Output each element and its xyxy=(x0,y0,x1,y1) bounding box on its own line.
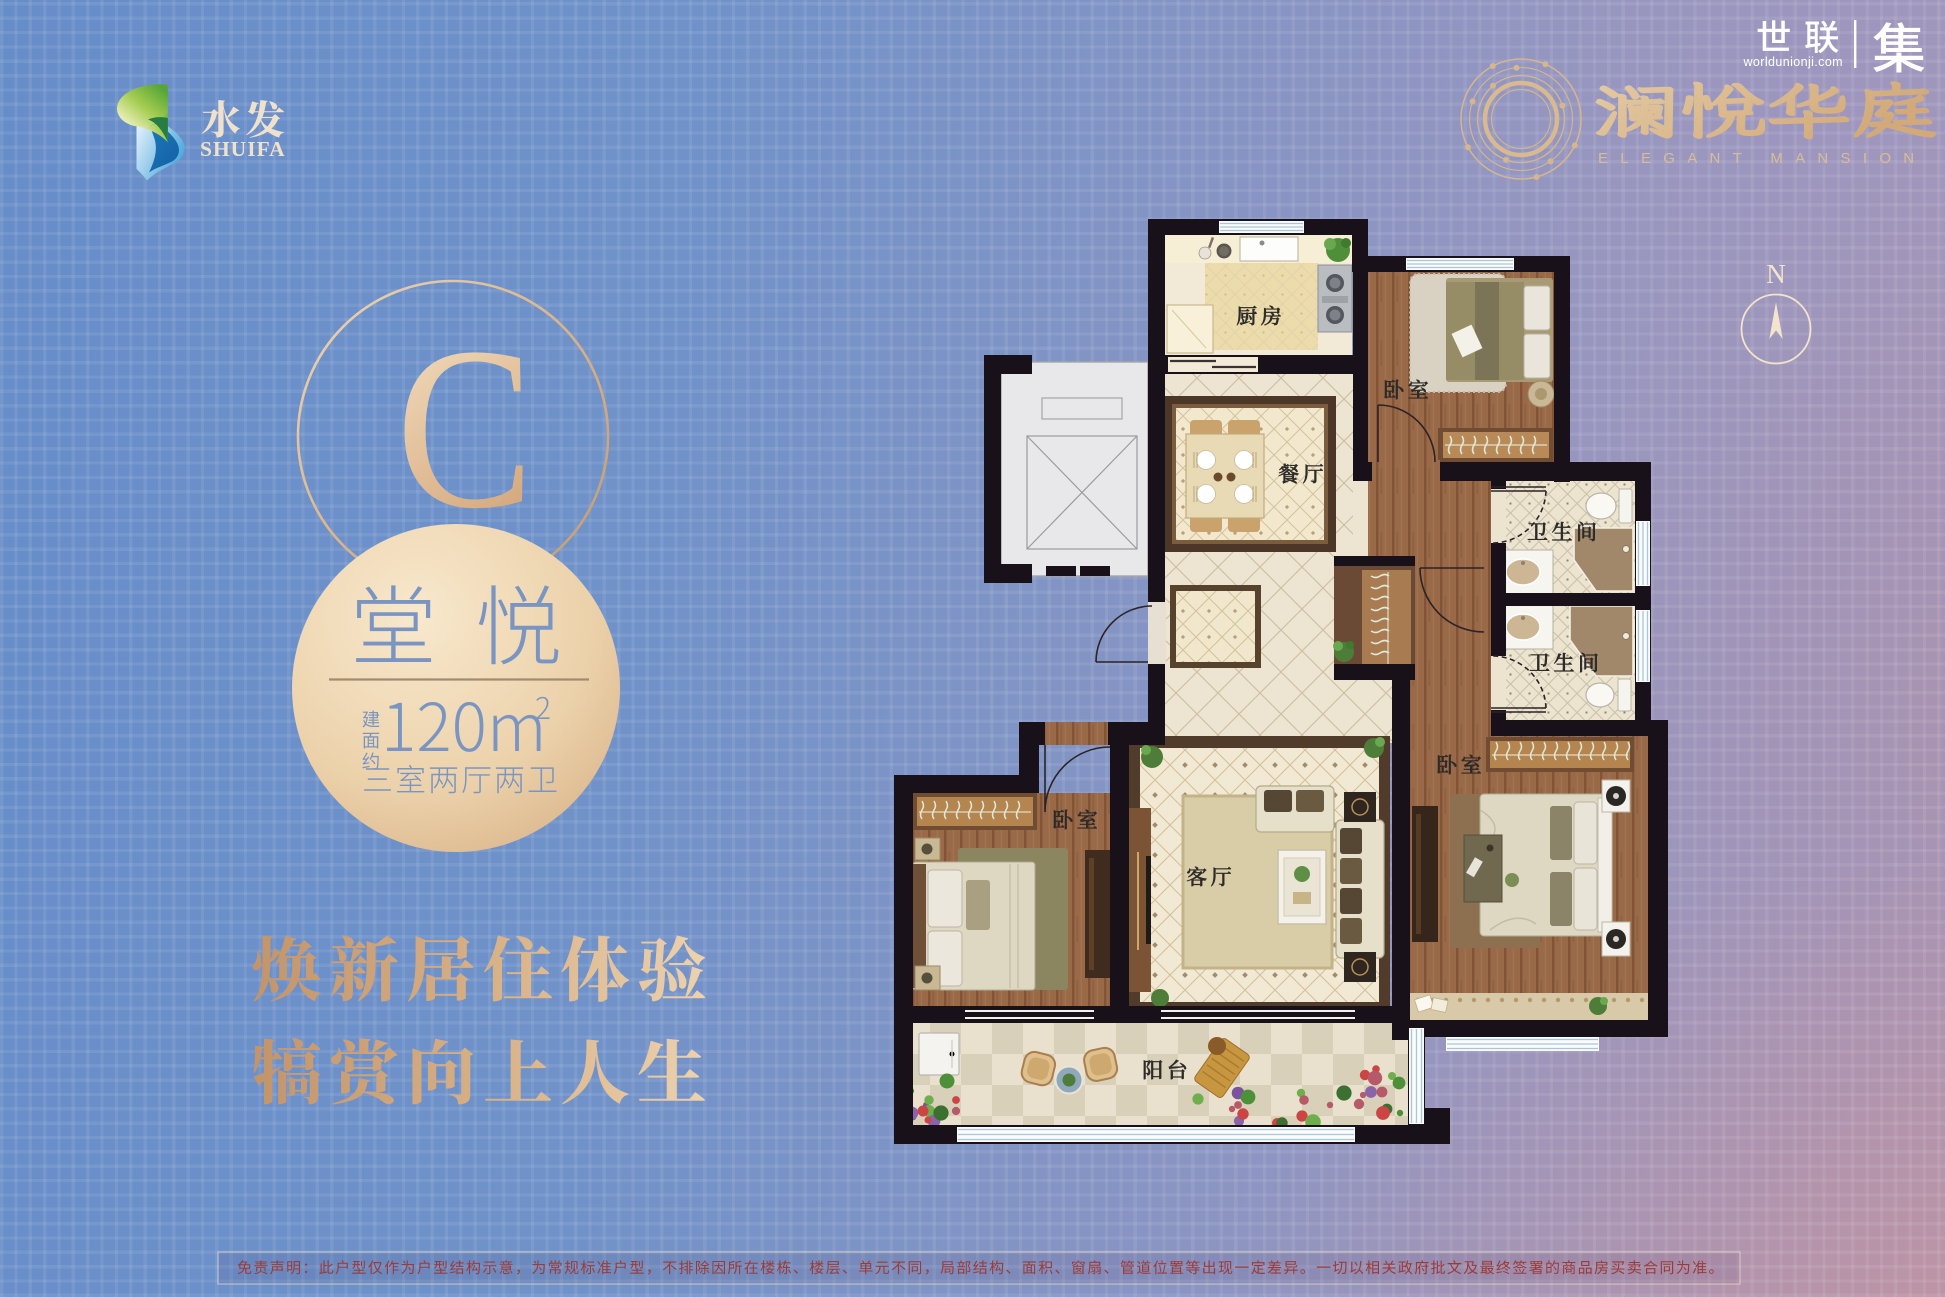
svg-text:N: N xyxy=(1766,259,1786,289)
svg-text:C: C xyxy=(396,300,534,557)
svg-text:worldunionji.com: worldunionji.com xyxy=(1743,55,1844,69)
svg-text:ELEGANT MANSION: ELEGANT MANSION xyxy=(1598,150,1926,167)
svg-text:SHUIFA: SHUIFA xyxy=(200,137,286,161)
